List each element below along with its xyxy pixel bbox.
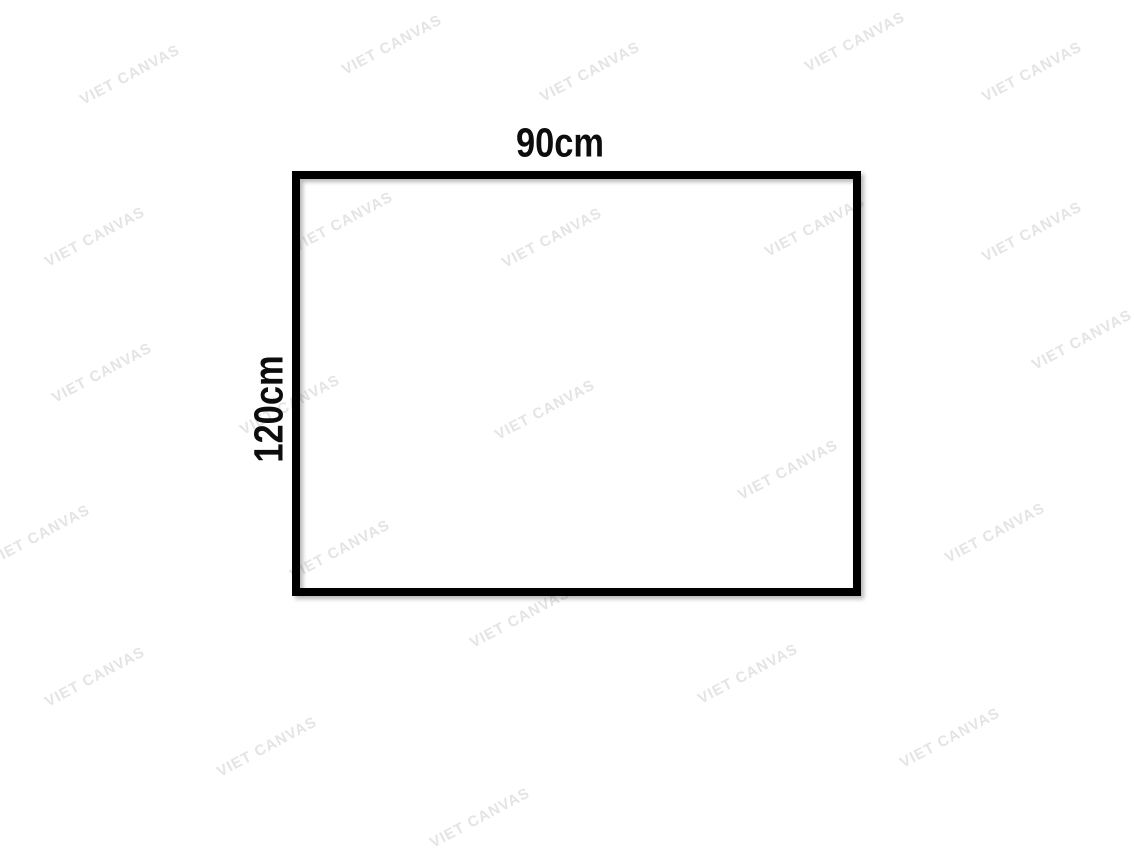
watermark-text: VIET CANVAS (1029, 307, 1134, 374)
watermark-text: VIET CANVAS (42, 204, 148, 271)
watermark-text: VIET CANVAS (897, 705, 1003, 772)
width-dimension-label: 90cm (516, 120, 604, 167)
watermark-text: VIET CANVAS (802, 9, 908, 76)
canvas-frame (292, 171, 861, 596)
watermark-text: VIET CANVAS (979, 199, 1085, 266)
watermark-text: VIET CANVAS (0, 502, 93, 569)
watermark-text: VIET CANVAS (695, 641, 801, 708)
height-dimension-label: 120cm (246, 355, 293, 462)
watermark-text: VIET CANVAS (537, 39, 643, 106)
watermark-text: VIET CANVAS (942, 500, 1048, 567)
watermark-text: VIET CANVAS (979, 39, 1085, 106)
watermark-text: VIET CANVAS (42, 644, 148, 711)
watermark-text: VIET CANVAS (427, 785, 533, 850)
product-dimension-image: VIET CANVASVIET CANVASVIET CANVASVIET CA… (0, 0, 1134, 850)
watermark-text: VIET CANVAS (214, 714, 320, 781)
watermark-text: VIET CANVAS (49, 340, 155, 407)
watermark-text: VIET CANVAS (77, 42, 183, 109)
watermark-text: VIET CANVAS (339, 12, 445, 79)
